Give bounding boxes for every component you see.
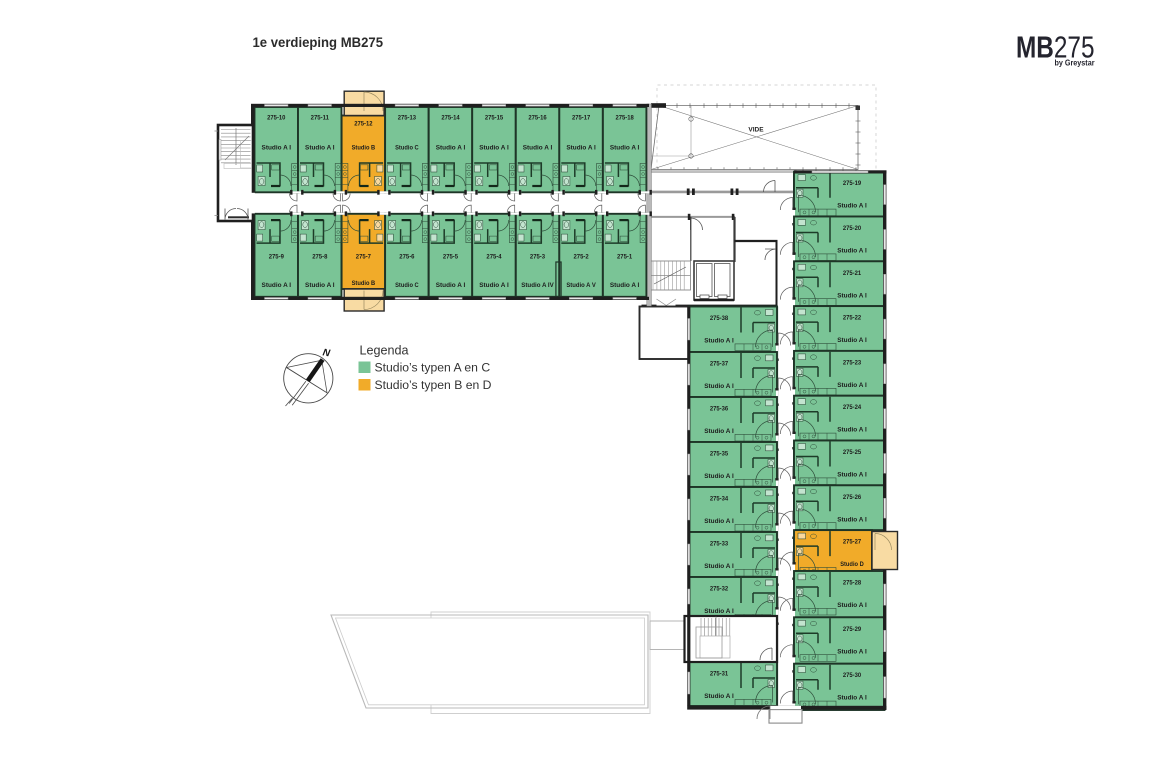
svg-text:275-5: 275-5: [443, 254, 458, 261]
svg-text:275-33: 275-33: [710, 541, 729, 548]
svg-text:Studio A I: Studio A I: [704, 383, 734, 390]
svg-text:Studio D: Studio D: [840, 561, 864, 568]
svg-text:Studio A I: Studio A I: [704, 518, 734, 525]
svg-text:Studio C: Studio C: [395, 282, 419, 289]
svg-text:VIDE: VIDE: [748, 127, 764, 134]
svg-text:Studio A I: Studio A I: [837, 602, 867, 609]
svg-text:by Greystar: by Greystar: [1055, 59, 1096, 68]
svg-text:275-13: 275-13: [398, 115, 417, 122]
svg-text:275-19: 275-19: [843, 180, 862, 187]
svg-text:Studio A I: Studio A I: [262, 145, 292, 152]
svg-text:275-36: 275-36: [710, 406, 729, 413]
svg-text:Studio A I: Studio A I: [479, 145, 509, 152]
svg-text:275-1: 275-1: [617, 254, 632, 261]
svg-text:Studio’s typen B en D: Studio’s typen B en D: [375, 378, 492, 392]
svg-text:Studio A I: Studio A I: [704, 473, 734, 480]
svg-text:Studio A I: Studio A I: [305, 282, 335, 289]
svg-text:275-4: 275-4: [486, 254, 501, 261]
svg-text:275-15: 275-15: [485, 115, 504, 122]
svg-text:Studio A I: Studio A I: [704, 428, 734, 435]
svg-text:1e verdieping MB275: 1e verdieping MB275: [253, 35, 384, 50]
svg-text:Studio’s typen A en C: Studio’s typen A en C: [375, 360, 491, 374]
svg-text:Studio A I: Studio A I: [704, 693, 734, 700]
svg-text:Studio A I: Studio A I: [837, 248, 867, 255]
svg-text:Studio A I: Studio A I: [610, 145, 640, 152]
svg-text:Studio A I: Studio A I: [837, 382, 867, 389]
svg-text:275-24: 275-24: [843, 404, 862, 411]
svg-text:275-16: 275-16: [528, 115, 547, 122]
svg-text:275-10: 275-10: [267, 115, 286, 122]
svg-text:Studio A I: Studio A I: [837, 472, 867, 479]
svg-text:Studio A I: Studio A I: [436, 282, 466, 289]
svg-text:275-26: 275-26: [843, 494, 862, 501]
svg-text:Studio A I: Studio A I: [262, 282, 292, 289]
svg-text:275-7: 275-7: [356, 254, 371, 261]
svg-text:275-20: 275-20: [843, 225, 862, 232]
svg-text:275-17: 275-17: [572, 115, 591, 122]
svg-text:Studio A I: Studio A I: [837, 292, 867, 299]
svg-text:Studio A I: Studio A I: [704, 338, 734, 345]
svg-text:Legenda: Legenda: [360, 344, 409, 358]
svg-text:275-14: 275-14: [441, 115, 460, 122]
svg-text:275-38: 275-38: [710, 315, 729, 322]
svg-text:Studio A I: Studio A I: [305, 145, 335, 152]
svg-text:Studio A I: Studio A I: [610, 282, 640, 289]
svg-text:275-25: 275-25: [843, 449, 862, 456]
svg-text:Studio A I: Studio A I: [837, 648, 867, 655]
svg-text:Studio A I: Studio A I: [704, 563, 734, 570]
svg-text:275-18: 275-18: [615, 115, 634, 122]
svg-text:Studio A I: Studio A I: [837, 337, 867, 344]
svg-text:275-34: 275-34: [710, 496, 729, 503]
svg-text:Studio A I: Studio A I: [479, 282, 509, 289]
svg-text:275-31: 275-31: [710, 671, 729, 678]
svg-text:Studio B: Studio B: [352, 280, 376, 287]
svg-text:275-2: 275-2: [574, 254, 589, 261]
svg-text:Studio A I: Studio A I: [837, 516, 867, 523]
svg-text:Studio C: Studio C: [395, 145, 419, 152]
svg-text:Studio A I: Studio A I: [837, 203, 867, 210]
svg-text:Studio A I: Studio A I: [436, 145, 466, 152]
svg-text:275-12: 275-12: [354, 121, 373, 128]
svg-text:275-27: 275-27: [843, 539, 862, 546]
svg-text:275-30: 275-30: [843, 672, 862, 679]
svg-text:Studio A I: Studio A I: [704, 608, 734, 615]
svg-text:275-22: 275-22: [843, 315, 862, 322]
svg-text:275-3: 275-3: [530, 254, 545, 261]
svg-text:275-29: 275-29: [843, 626, 862, 633]
svg-text:Studio A I: Studio A I: [523, 145, 553, 152]
svg-text:Studio A IV: Studio A IV: [521, 282, 554, 289]
svg-text:Studio A I: Studio A I: [566, 145, 596, 152]
svg-text:Studio A I: Studio A I: [837, 695, 867, 702]
svg-text:275-6: 275-6: [399, 254, 414, 261]
svg-text:Studio B: Studio B: [352, 145, 376, 152]
svg-text:275-23: 275-23: [843, 359, 862, 366]
svg-text:275-35: 275-35: [710, 451, 729, 458]
svg-text:275-9: 275-9: [269, 254, 284, 261]
svg-text:275-11: 275-11: [311, 115, 330, 122]
svg-text:Studio A I: Studio A I: [837, 427, 867, 434]
svg-text:275-28: 275-28: [843, 580, 862, 587]
svg-text:275-21: 275-21: [843, 270, 862, 277]
svg-text:275-37: 275-37: [710, 361, 729, 368]
svg-text:275-32: 275-32: [710, 586, 729, 593]
svg-text:Studio A V: Studio A V: [566, 282, 596, 289]
svg-text:275-8: 275-8: [312, 254, 327, 261]
